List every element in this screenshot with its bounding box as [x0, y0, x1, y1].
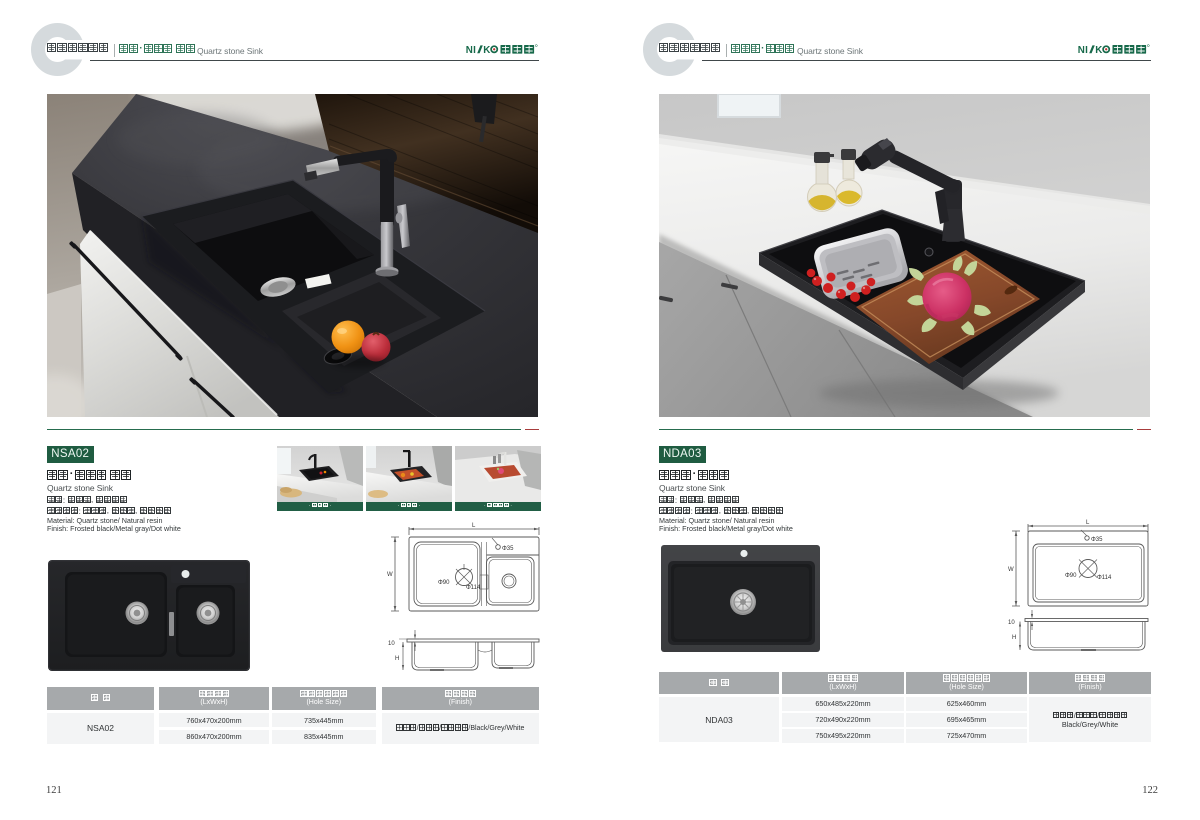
svg-text:Φ114: Φ114 [466, 585, 481, 591]
svg-text:10: 10 [1008, 620, 1015, 626]
svg-text:10: 10 [388, 641, 395, 647]
svg-text:Φ35: Φ35 [1091, 537, 1103, 543]
svg-text:Φ90: Φ90 [438, 580, 450, 586]
svg-text:H: H [395, 656, 399, 662]
svg-text:K: K [1095, 45, 1102, 56]
svg-text:K: K [483, 45, 490, 56]
svg-text:Φ114: Φ114 [1097, 575, 1112, 581]
svg-text:L: L [1086, 520, 1090, 526]
svg-text:W: W [1008, 567, 1014, 573]
svg-text:NI: NI [466, 45, 476, 56]
svg-text:NI: NI [1078, 45, 1088, 56]
svg-text:Φ35: Φ35 [502, 546, 514, 552]
svg-text:Φ90: Φ90 [1065, 573, 1077, 579]
svg-text:W: W [387, 572, 393, 578]
svg-text:L: L [472, 523, 476, 529]
svg-text:H: H [1012, 635, 1016, 641]
